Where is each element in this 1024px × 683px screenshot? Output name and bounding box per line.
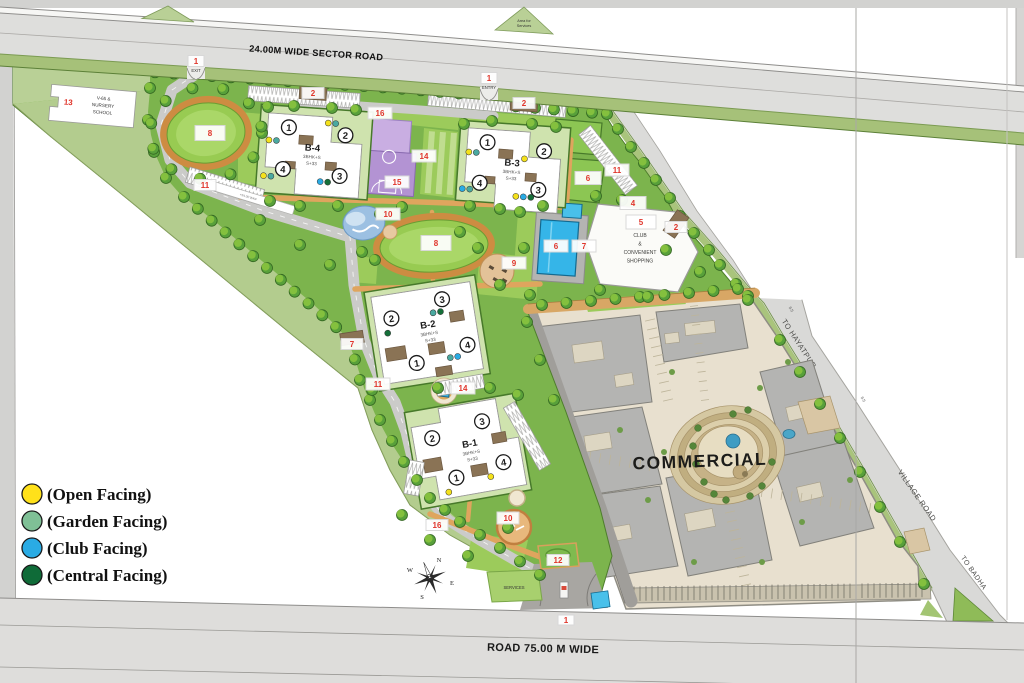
svg-text:11: 11 xyxy=(201,181,210,190)
svg-text:6: 6 xyxy=(586,174,591,183)
svg-text:11: 11 xyxy=(613,166,622,175)
svg-text:7: 7 xyxy=(350,340,355,349)
svg-text:EXIT: EXIT xyxy=(191,68,201,73)
svg-text:4: 4 xyxy=(631,199,636,208)
svg-text:E: E xyxy=(450,580,454,587)
svg-text:N: N xyxy=(437,557,442,564)
svg-text:14: 14 xyxy=(459,384,468,393)
svg-text:S+33: S+33 xyxy=(505,176,517,182)
svg-text:13: 13 xyxy=(63,98,73,108)
svg-text:2: 2 xyxy=(674,223,679,232)
svg-text:8: 8 xyxy=(208,129,213,138)
svg-text:ROAD 75.00 M WIDE: ROAD 75.00 M WIDE xyxy=(487,642,599,657)
svg-text:S: S xyxy=(420,594,424,601)
svg-text:10: 10 xyxy=(504,514,513,523)
svg-text:1: 1 xyxy=(194,57,199,66)
svg-text:SHOPPING: SHOPPING xyxy=(627,259,654,265)
svg-text:5: 5 xyxy=(639,218,644,227)
svg-text:CLUB: CLUB xyxy=(633,233,647,239)
svg-text:ENTRY: ENTRY xyxy=(482,85,496,90)
svg-text:11: 11 xyxy=(374,380,383,389)
svg-text:2: 2 xyxy=(342,131,348,142)
svg-text:16: 16 xyxy=(433,521,442,530)
svg-text:2: 2 xyxy=(541,147,547,158)
svg-text:CONVENIENT: CONVENIENT xyxy=(624,250,657,256)
svg-text:S+33: S+33 xyxy=(306,161,318,167)
svg-text:16: 16 xyxy=(376,109,385,118)
svg-text:(Central Facing): (Central Facing) xyxy=(47,566,167,585)
svg-text:12: 12 xyxy=(554,556,563,565)
svg-text:3: 3 xyxy=(337,171,343,182)
svg-text:2: 2 xyxy=(522,99,527,108)
svg-text:3: 3 xyxy=(535,185,541,196)
svg-text:6: 6 xyxy=(554,242,559,251)
svg-text:W: W xyxy=(407,567,414,574)
svg-text:15: 15 xyxy=(393,178,402,187)
svg-text:14: 14 xyxy=(420,152,429,161)
svg-text:(Garden Facing): (Garden Facing) xyxy=(47,512,167,531)
svg-text:Services: Services xyxy=(517,24,532,28)
svg-text:9: 9 xyxy=(512,259,517,268)
svg-text:2: 2 xyxy=(311,89,316,98)
svg-text:(Open Facing): (Open Facing) xyxy=(47,485,151,504)
svg-text:10: 10 xyxy=(384,210,393,219)
svg-text:1: 1 xyxy=(487,74,492,83)
svg-text:(Club Facing): (Club Facing) xyxy=(47,539,148,558)
svg-text:SERVICES: SERVICES xyxy=(503,585,524,590)
svg-text:B-4: B-4 xyxy=(304,142,321,154)
svg-text:1: 1 xyxy=(564,616,569,625)
svg-text:Area for: Area for xyxy=(517,19,531,23)
svg-text:8: 8 xyxy=(434,239,439,248)
svg-text:7: 7 xyxy=(582,242,587,251)
svg-text:B-3: B-3 xyxy=(504,157,520,169)
